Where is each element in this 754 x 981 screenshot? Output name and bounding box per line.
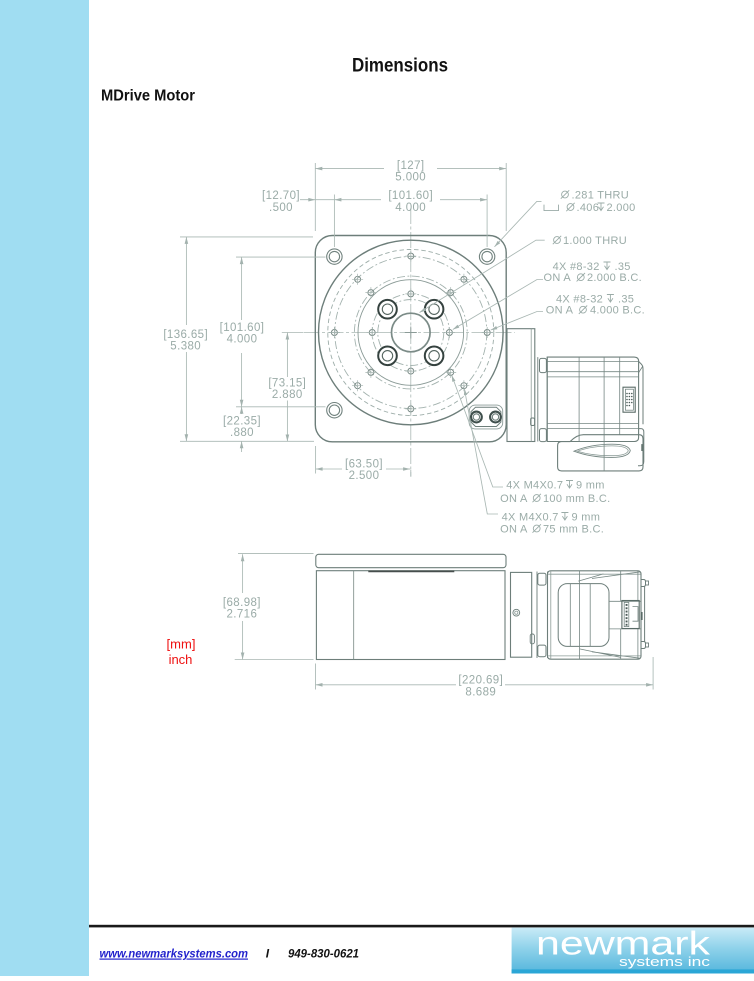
svg-text:2.500: 2.500 xyxy=(349,470,380,482)
svg-text:.35: .35 xyxy=(615,261,631,273)
svg-text:2.880: 2.880 xyxy=(272,389,303,401)
svg-text:[mm]: [mm] xyxy=(167,637,196,652)
svg-text:1.000 THRU: 1.000 THRU xyxy=(563,235,627,247)
svg-text:.880: .880 xyxy=(230,427,254,439)
svg-text:2.000 B.C.: 2.000 B.C. xyxy=(587,272,642,284)
svg-text:.35: .35 xyxy=(618,293,634,305)
svg-text:949-830-0621: 949-830-0621 xyxy=(288,947,359,961)
svg-text:2.716: 2.716 xyxy=(227,608,258,620)
svg-text:ON A: ON A xyxy=(546,305,574,317)
svg-text:4X #8-32: 4X #8-32 xyxy=(556,293,603,305)
svg-text:[68.98]: [68.98] xyxy=(223,597,261,609)
svg-text:2.000: 2.000 xyxy=(607,202,636,214)
svg-text:5.380: 5.380 xyxy=(170,341,201,353)
svg-text:4.000: 4.000 xyxy=(227,334,258,346)
svg-text:MDrive Motor: MDrive Motor xyxy=(101,88,195,105)
svg-text:.406: .406 xyxy=(577,202,600,214)
svg-text:.281 THRU: .281 THRU xyxy=(572,190,630,202)
svg-text:100 mm B.C.: 100 mm B.C. xyxy=(543,493,611,505)
svg-text:[101.60]: [101.60] xyxy=(388,190,433,202)
svg-text:ON A: ON A xyxy=(544,272,572,284)
svg-text:[220.69]: [220.69] xyxy=(458,675,503,687)
svg-text:4X #8-32: 4X #8-32 xyxy=(553,261,600,273)
svg-text:8.689: 8.689 xyxy=(465,687,496,699)
svg-text:4.000 B.C.: 4.000 B.C. xyxy=(590,305,645,317)
svg-text:[63.50]: [63.50] xyxy=(345,458,383,470)
svg-text:ON A: ON A xyxy=(500,493,528,505)
svg-text:[73.15]: [73.15] xyxy=(268,378,306,390)
svg-text:Dimensions: Dimensions xyxy=(352,55,448,77)
svg-text:75 mm B.C.: 75 mm B.C. xyxy=(543,523,604,535)
svg-text:[12.70]: [12.70] xyxy=(262,190,300,202)
svg-text:[136.65]: [136.65] xyxy=(163,329,208,341)
svg-text:9 mm: 9 mm xyxy=(572,511,601,523)
svg-text:www.newmarksystems.com: www.newmarksystems.com xyxy=(100,947,249,961)
svg-text:4X M4X0.7: 4X M4X0.7 xyxy=(502,511,559,523)
svg-text:inch: inch xyxy=(169,652,193,667)
svg-text:systems inc: systems inc xyxy=(619,955,710,969)
svg-text:[101.60]: [101.60] xyxy=(220,322,265,334)
svg-text:.500: .500 xyxy=(269,202,293,214)
svg-text:5.000: 5.000 xyxy=(395,172,426,184)
svg-text:4.000: 4.000 xyxy=(395,202,426,214)
svg-text:[127]: [127] xyxy=(397,160,425,172)
svg-text:ON A: ON A xyxy=(500,523,528,535)
svg-text:4X M4X0.7: 4X M4X0.7 xyxy=(506,479,563,491)
svg-text:[22.35]: [22.35] xyxy=(223,416,261,428)
svg-text:9 mm: 9 mm xyxy=(576,479,605,491)
